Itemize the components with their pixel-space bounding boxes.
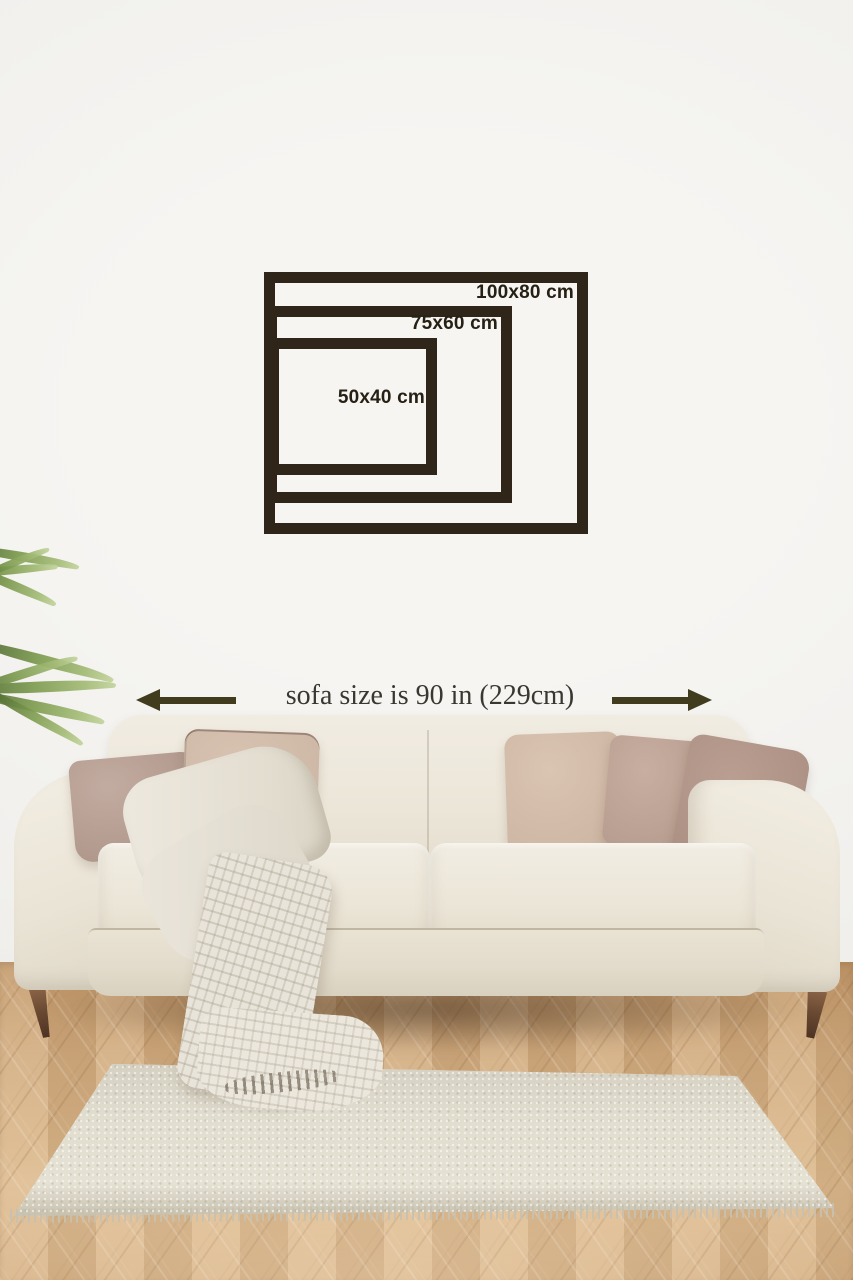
sofa-back-seam bbox=[427, 730, 429, 855]
size-label-75x60: 75x60 cm bbox=[350, 314, 498, 334]
right-arrow-head bbox=[688, 689, 712, 711]
size-label-100x80: 100x80 cm bbox=[420, 283, 574, 303]
sofa-size-note: sofa size is 90 in (229cm) bbox=[250, 680, 610, 712]
room-mockup: 100x80 cm 75x60 cm 50x40 cm sofa size is… bbox=[0, 0, 853, 1280]
size-label-50x40: 50x40 cm bbox=[280, 388, 425, 408]
throw-blanket-end bbox=[195, 1006, 386, 1117]
right-arrow-icon bbox=[612, 689, 712, 711]
left-arrow-shaft bbox=[156, 697, 236, 704]
right-arrow-shaft bbox=[612, 697, 692, 704]
left-arrow-icon bbox=[136, 689, 236, 711]
